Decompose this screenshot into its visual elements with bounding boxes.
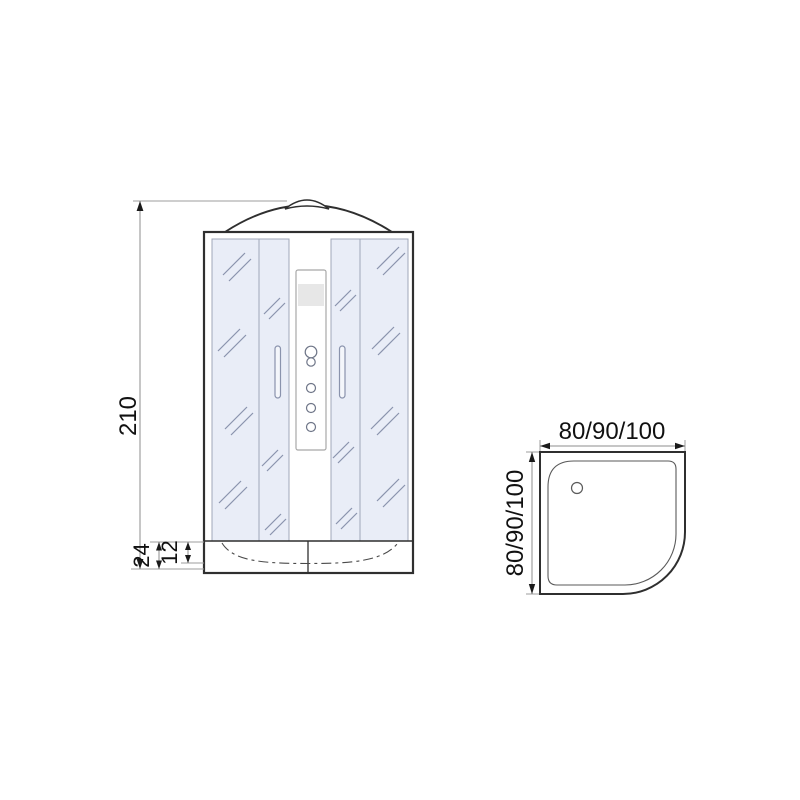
shower-tray-plan [540, 452, 685, 594]
dimension-tray-depth: 12 [157, 540, 204, 564]
shower-cabin-dimension-diagram: 210 24 12 [0, 0, 800, 800]
shower-column-band [298, 284, 324, 306]
dimension-width: 80/90/100 [540, 418, 685, 451]
top-view: 80/90/100 80/90/100 [502, 418, 685, 594]
dimension-label-tray-height: 24 [129, 543, 154, 567]
front-view: 210 24 12 [115, 200, 413, 573]
drain-hole [572, 483, 583, 494]
glass-panel-right-outer [360, 239, 408, 541]
shower-jet-button-3 [307, 423, 316, 432]
glass-panel-left-inner [259, 239, 289, 541]
dimension-label-width: 80/90/100 [559, 418, 666, 445]
shower-jet-button-2 [307, 404, 316, 413]
technical-drawing-page: 210 24 12 [0, 0, 800, 800]
door-handle-left [275, 346, 281, 398]
glass-panel-left-outer [212, 239, 259, 541]
roof-top-cap [285, 200, 329, 209]
dimension-depth: 80/90/100 [502, 452, 539, 594]
door-handle-right [340, 346, 346, 398]
dimension-label-height: 210 [115, 396, 142, 436]
dimension-label-tray-depth: 12 [157, 540, 182, 564]
roof-dome [225, 205, 392, 232]
shower-mixer-knob [305, 346, 317, 366]
shower-jet-button-1 [307, 384, 316, 393]
dimension-label-depth: 80/90/100 [502, 470, 529, 577]
